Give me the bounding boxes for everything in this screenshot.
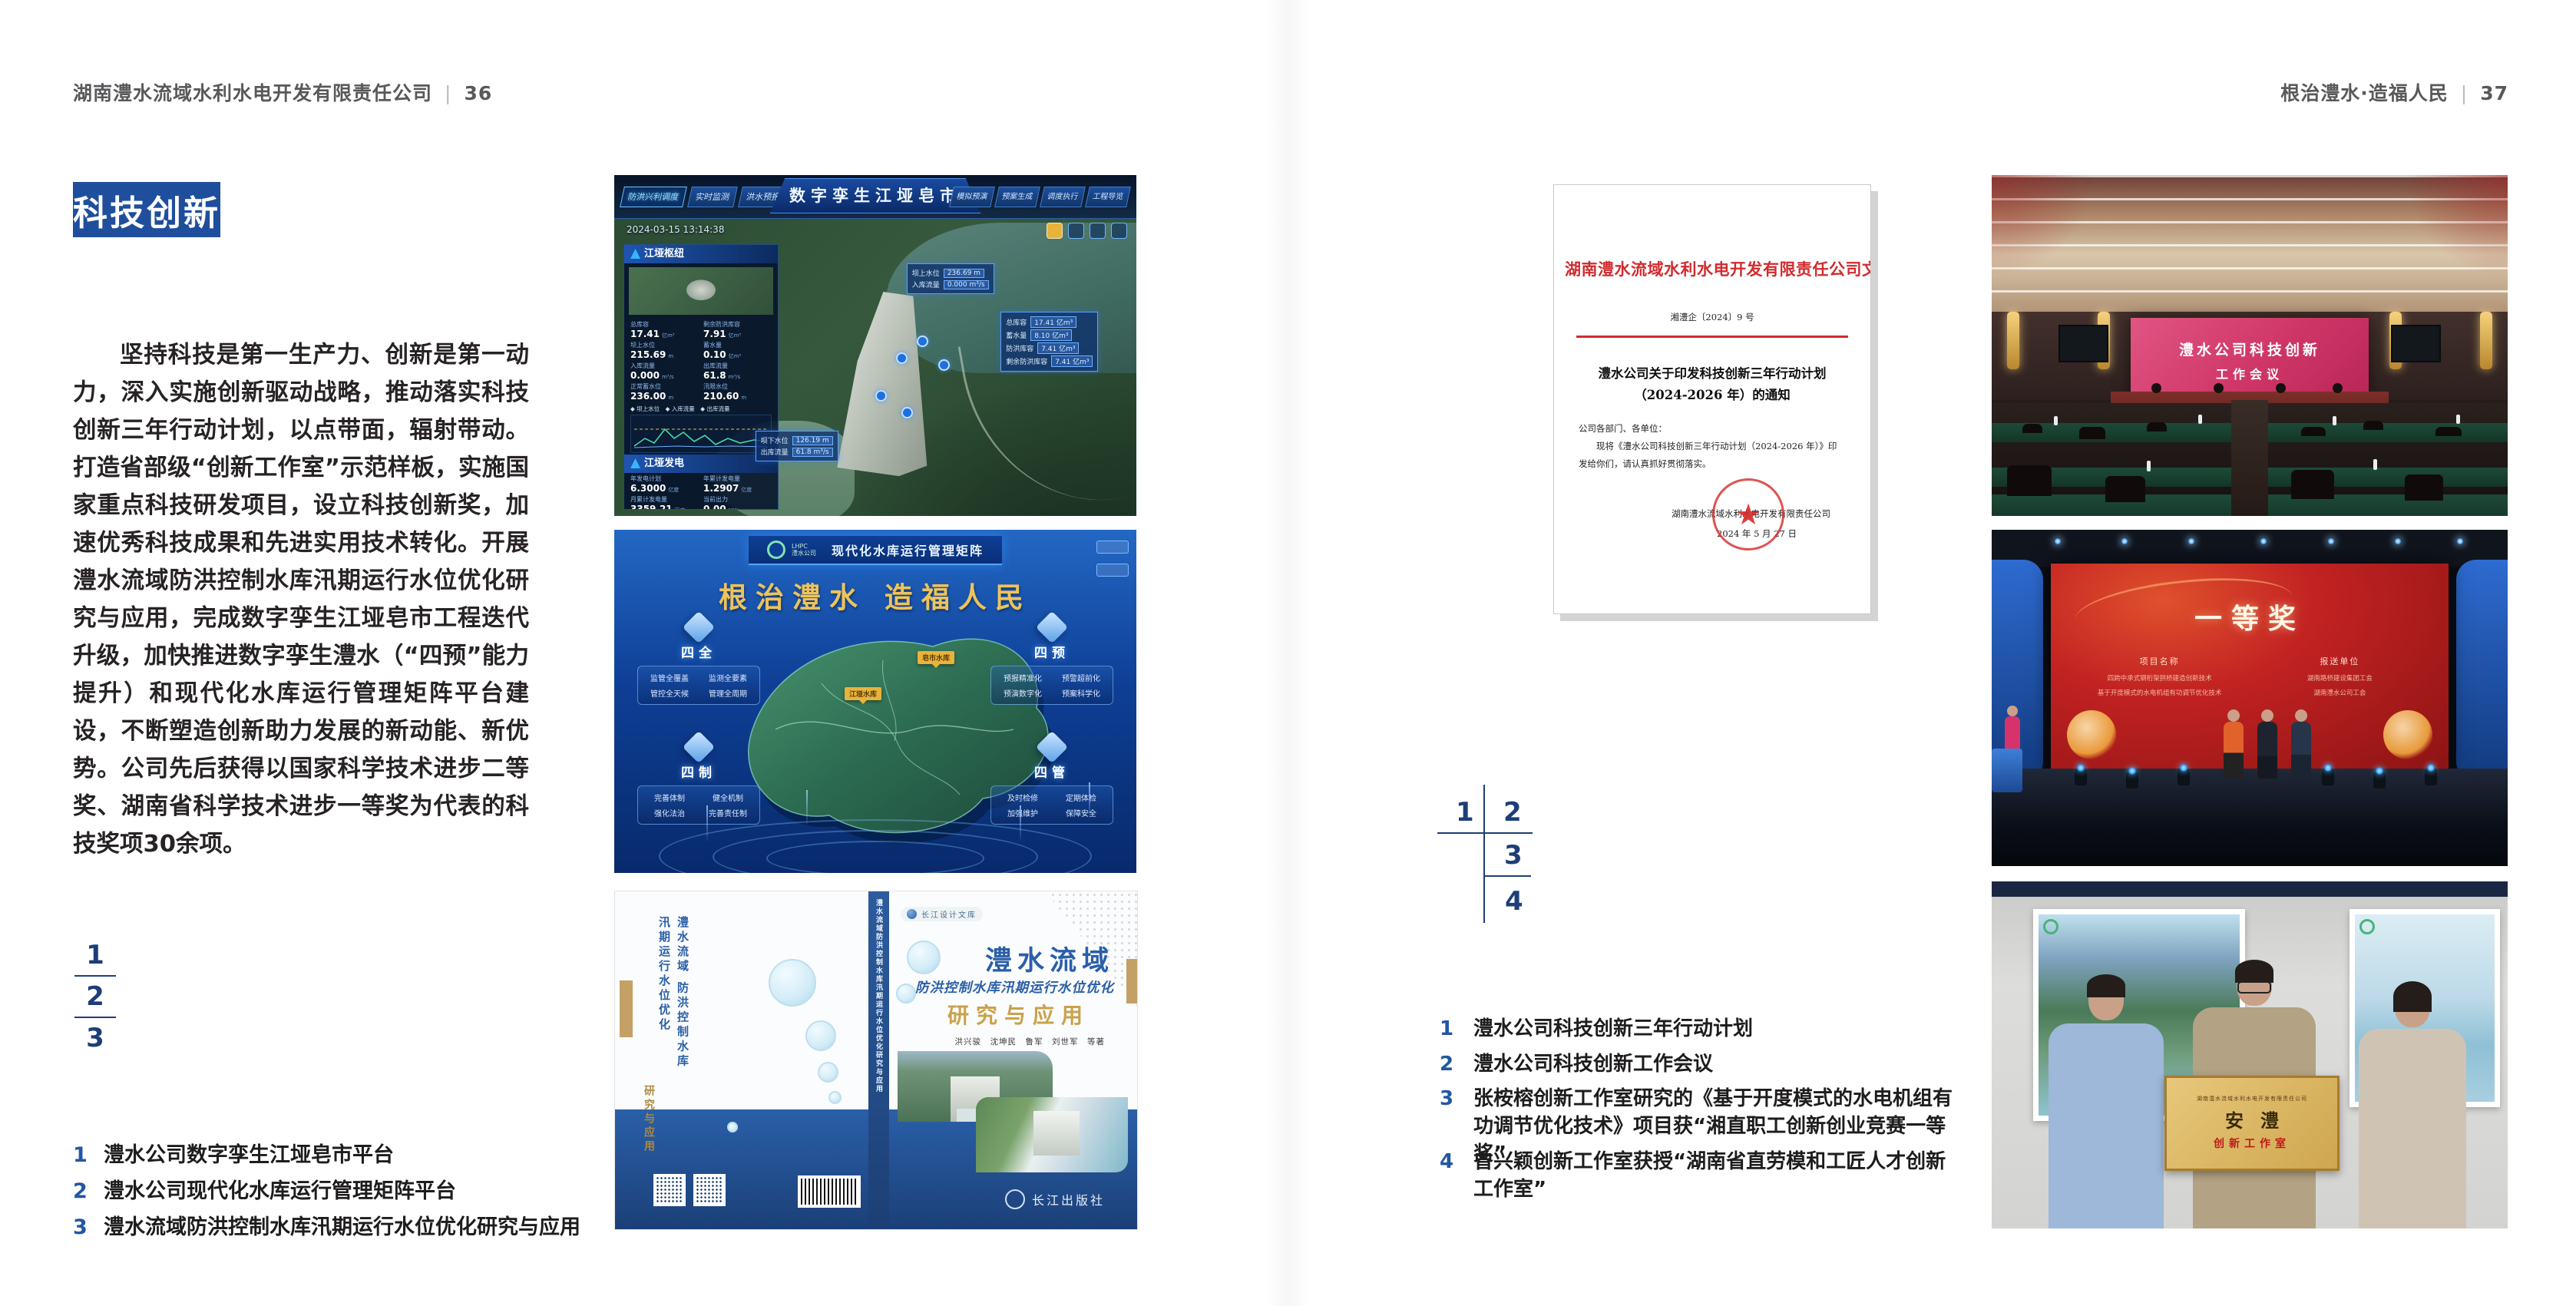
caption-row: 2 澧水公司现代化水库运行管理矩阵平台 <box>73 1179 456 1205</box>
page-number-right: 37 <box>2480 82 2508 104</box>
figure-key-number: 2 <box>74 983 116 1010</box>
poster-logo-icon <box>2359 919 2375 934</box>
alert-icon <box>1047 223 1063 239</box>
light-beam <box>1089 782 1090 819</box>
locate-icon <box>1090 223 1106 239</box>
ripple-ring <box>766 841 984 873</box>
caption-row: 1 澧水公司数字孪生江垭皂市平台 <box>73 1142 394 1169</box>
header-separator: | <box>445 82 451 104</box>
book-spine: 澧水流域防洪控制水库汛期运行水位优化研究与应用 <box>868 891 889 1229</box>
bubble-decoration <box>907 941 941 974</box>
presenter-suit <box>2257 722 2277 779</box>
stage-light-icon <box>2054 537 2062 545</box>
caption-text: 澧水公司科技创新工作会议 <box>1473 1050 1965 1078</box>
back-cover-vertical-title: 澧水流域 防洪控制水库汛期运行水位优化 <box>655 916 692 1079</box>
stat-cell: 汛限水位210.60m <box>703 382 772 402</box>
wall-lamp <box>2480 312 2492 369</box>
book-authors: 洪兴骏 沈坤民 鲁军 刘世军 等著 <box>955 1036 1106 1047</box>
stage-side-panel <box>2456 560 2508 782</box>
power-stats-grid: 年发电计划6.3000亿度 年累计发电量1.2907亿度 月累计发电量3359.… <box>624 473 778 510</box>
plaque-org-line: 湖南澧水流域水利水电开发有限责任公司 <box>2197 1095 2307 1103</box>
module-siquan: 四全 监管全覆盖监测全要素 管控全天候管理全周期 <box>637 616 760 705</box>
series-name: 长江设计文库 <box>921 908 977 920</box>
lhpc-logo-icon <box>767 541 785 559</box>
figure-meeting-photo: 澧水公司科技创新 工作会议 <box>1992 175 2508 516</box>
document-body-line: 发给你们，请认真抓好贯彻落实。 <box>1579 455 1850 473</box>
bubble-decoration <box>727 1122 738 1132</box>
spine-title: 澧水流域防洪控制水库汛期运行水位优化研究与应用 <box>874 899 884 1129</box>
sensor-marker-icon <box>896 352 908 364</box>
sensor-marker-icon <box>938 359 950 371</box>
caption-number: 4 <box>1440 1148 1473 1203</box>
light-beam <box>1020 805 1021 842</box>
module-icon <box>1036 611 1068 643</box>
page-number-left: 36 <box>464 82 492 104</box>
book-title-line1: 澧水流域 <box>985 939 1114 978</box>
document-salutation: 公司各部门、各单位： <box>1579 420 1850 438</box>
series-logo: 长江设计文库 <box>901 907 983 921</box>
host-podium <box>1992 749 2022 792</box>
person-left <box>2049 979 2164 1228</box>
map-callout-capacity: 总库容17.41 亿m³ 蓄水量8.10 亿m³ 防洪库容7.41 亿m³ 剩余… <box>1000 312 1098 372</box>
stat-cell: 坝上水位215.69m <box>630 341 699 360</box>
caption-text: 澧水公司科技创新三年行动计划 <box>1473 1015 1965 1043</box>
figure-key-rule <box>1483 785 1485 923</box>
document-red-rule <box>1576 336 1848 338</box>
figure-key-right: 1 2 3 4 <box>1434 782 1536 927</box>
moving-head-light <box>2178 769 2190 785</box>
stat-cell: 年累计发电量1.2907亿度 <box>703 474 772 494</box>
map-callout-upstream: 坝上水位236.69 m 入库流量0.000 m³/s <box>907 263 994 294</box>
stat-cell: 正常蓄水位236.00m <box>630 382 699 402</box>
moving-head-light <box>2425 769 2437 785</box>
map-callout-downstream: 坝下水位126.19 m 出库流量61.8 m³/s <box>756 431 838 461</box>
figure-matrix-platform: LHPC澧水公司 现代化水库运行管理矩阵 根治澧水 造福人民 皂市水库 江垭 <box>614 530 1136 873</box>
settings-icon <box>1111 223 1127 239</box>
stat-cell: 入库流量0.000m³/s <box>630 362 699 381</box>
person-right <box>2359 986 2466 1228</box>
caption-text: 曾兴颖创新工作室获授“湖南省直劳模和工匠人才创新工作室” <box>1473 1148 1965 1203</box>
front-cover-gold-tab <box>1126 959 1137 1003</box>
matrix-header: LHPC澧水公司 现代化水库运行管理矩阵 <box>749 536 1002 565</box>
caption-row: 1 澧水公司科技创新三年行动计划 <box>1440 1015 1965 1043</box>
figure-award-photo: 一等奖 项目名称 四跨中承式钢桁架拱桥建造创新技术 基于开度模式的水电机组有功调… <box>1992 530 2508 866</box>
tab-realtime-monitoring: 实时监测 <box>687 187 738 207</box>
dashboard-tool-icons <box>1047 223 1127 239</box>
document-number: 湘澧企〔2024〕9 号 <box>1554 311 1870 323</box>
screen-glow-orb <box>2383 710 2432 759</box>
screen-title-line2: 工作会议 <box>2216 364 2283 382</box>
module-icon <box>683 611 715 643</box>
light-beam <box>706 805 708 842</box>
bubble-decoration <box>828 1091 842 1104</box>
caption-number: 1 <box>73 1142 104 1169</box>
matrix-corner-button <box>1096 541 1129 554</box>
press-logo-icon <box>1005 1189 1025 1209</box>
press-name: 长江出版社 <box>1032 1190 1105 1208</box>
figure-key-rule <box>74 975 116 977</box>
hub-stats-grid: 总库容17.41亿m³ 剩余防洪库容7.91亿m³ 坝上水位215.69m 蓄水… <box>624 319 778 403</box>
back-cover-gold-bar <box>620 980 633 1037</box>
publisher-logo-icon <box>907 909 917 919</box>
award-title: 一等奖 <box>2051 597 2448 636</box>
document-subject: 澧水公司关于印发科技创新三年行动计划（2024-2026 年）的通知 <box>1554 363 1870 406</box>
header-separator: | <box>2461 82 2468 104</box>
awardee-orange <box>2224 722 2244 779</box>
figure-key-number: 1 <box>74 941 116 969</box>
document-body-line: 现将《澧水公司科技创新三年行动计划（2024-2026 年）》印 <box>1579 438 1850 455</box>
caption-text: 澧水公司数字孪生江垭皂市平台 <box>104 1142 394 1169</box>
moving-head-light <box>2075 769 2087 785</box>
moving-head-light <box>2126 772 2138 789</box>
right-tab-group: 模拟预演 预案生成 调度执行 工程导览 <box>951 187 1129 207</box>
figure-key-number: 1 <box>1456 797 1474 828</box>
figure-key-rule <box>1437 832 1533 834</box>
sensor-marker-icon <box>875 390 887 402</box>
hub-info-panel: 江垭枢纽 总库容17.41亿m³ 剩余防洪库容7.91亿m³ 坝上水位215.6… <box>623 244 779 510</box>
layers-icon <box>1068 223 1084 239</box>
dashboard-timestamp: 2024-03-15 13:14:38 <box>627 224 724 235</box>
figure-official-document: 湖南澧水流域水利水电开发有限责任公司文件 湘澧企〔2024〕9 号 澧水公司关于… <box>1553 184 1871 614</box>
matrix-title: 现代化水库运行管理矩阵 <box>832 541 984 559</box>
module-siyu: 四预 预报精准化预警超前化 预演数字化预案科学化 <box>990 616 1113 705</box>
book-title-line2: 防洪控制水库汛期运行水位优化 <box>915 977 1114 997</box>
barcode <box>798 1175 861 1208</box>
caption-number: 2 <box>1440 1050 1473 1078</box>
innovation-workshop-plaque: 湖南澧水流域水利水电开发有限责任公司 安澧 创新工作室 <box>2164 1076 2340 1171</box>
body-paragraph: 坚持科技是第一生产力、创新是第一动力，深入实施创新驱动战略，推动落实科技创新三年… <box>73 336 529 863</box>
caption-text: 澧水公司现代化水库运行管理矩阵平台 <box>104 1179 456 1205</box>
tab-dispatch: 调度执行 <box>1040 187 1086 207</box>
stage-light-icon <box>2327 537 2335 545</box>
tab-simulation: 模拟预演 <box>949 187 995 207</box>
stat-cell: 剩余防洪库容7.91亿m³ <box>703 320 772 339</box>
caption-row: 4 曾兴颖创新工作室获授“湖南省直劳模和工匠人才创新工作室” <box>1440 1148 1965 1203</box>
caption-text: 澧水流域防洪控制水库汛期运行水位优化研究与应用 <box>104 1215 580 1241</box>
page-gutter <box>1267 0 1310 1306</box>
award-unit-column: 报送单位 湖南路桥建设集团工会 湖南澧水公司工会 <box>2263 655 2416 703</box>
bubble-decoration <box>769 959 816 1007</box>
moving-head-light <box>2373 772 2386 789</box>
figure-key-number: 2 <box>1503 797 1522 828</box>
figure-key-number: 4 <box>1505 886 1523 917</box>
caption-row: 3 澧水流域防洪控制水库汛期运行水位优化研究与应用 <box>73 1215 580 1241</box>
screen-glow-orb <box>2067 710 2116 759</box>
spread-slogan: 根治澧水·造福人民 <box>2280 82 2449 104</box>
sensor-marker-icon <box>917 336 928 347</box>
stat-cell: 蓄水量0.10亿m³ <box>703 341 772 360</box>
official-seal-icon <box>1712 478 1784 551</box>
reservoir-marker-jiangya: 江垭水库 <box>845 687 881 700</box>
module-icon <box>1036 731 1068 763</box>
stage-light-icon <box>2121 537 2128 545</box>
panel-title: 江垭枢纽 <box>624 245 778 263</box>
module-icon <box>683 731 715 763</box>
module-siguan: 四管 及时检修定期体检 加强维护保障安全 <box>990 736 1113 825</box>
water-level-chart <box>630 415 772 453</box>
module-sizhi: 四制 完善体制健全机制 强化法治完善责任制 <box>637 736 760 825</box>
screen-title-line1: 澧水公司科技创新 <box>2179 339 2320 359</box>
dashboard-top-bar: 防洪兴利调度 实时监测 洪水预报 防汛预警 数字孪生江垭皂市 模拟预演 预案生成… <box>614 175 1136 219</box>
chart-legend: ◆ 坝上水位 ◆ 入库流量 ◆ 出库流量 <box>624 403 778 413</box>
figure-book-cover: 澧水流域 防洪控制水库汛期运行水位优化 研究与应用 澧水流域防洪控制水库汛期运行… <box>614 891 1138 1230</box>
wall-tv <box>2391 325 2440 362</box>
wall-tv <box>2058 325 2108 362</box>
magazine-spread: 湖南澧水流域水利水电开发有限责任公司|36 根治澧水·造福人民|37 科技创新 … <box>0 0 2576 1306</box>
figure-digital-twin-platform: 防洪兴利调度 实时监测 洪水预报 防汛预警 数字孪生江垭皂市 模拟预演 预案生成… <box>614 175 1136 516</box>
plaque-name: 安澧 <box>2208 1106 2296 1132</box>
sensor-marker-icon <box>901 407 913 418</box>
publisher-mark: 长江出版社 <box>1005 1189 1105 1209</box>
figure-key-left: 1 2 3 <box>74 941 116 1052</box>
caption-number: 2 <box>73 1179 104 1205</box>
tab-project-tour: 工程导览 <box>1085 187 1131 207</box>
caption-number: 3 <box>73 1215 104 1241</box>
center-aisle <box>2231 400 2267 516</box>
award-project-column: 项目名称 四跨中承式钢桁架拱桥建造创新技术 基于开度模式的水电机组有功调节优化技… <box>2083 655 2237 703</box>
tab-group-label: 防洪兴利调度 <box>620 187 687 207</box>
dashboard-title: 数字孪生江垭皂市 <box>770 178 980 213</box>
stat-cell: 总库容17.41亿m³ <box>630 320 699 339</box>
right-running-head: 根治澧水·造福人民|37 <box>2280 78 2508 106</box>
figure-key-rule <box>74 1017 116 1018</box>
stat-cell: 月累计发电量3359.21万度 <box>630 495 699 510</box>
cover-photo-dam-plant <box>976 1097 1128 1172</box>
company-name: 湖南澧水流域水利水电开发有限责任公司 <box>73 82 432 104</box>
award-led-screen: 一等奖 项目名称 四跨中承式钢桁架拱桥建造创新技术 基于开度模式的水电机组有功调… <box>2051 564 2448 772</box>
figure-key-rule <box>1483 875 1531 877</box>
tab-plan-generation: 预案生成 <box>994 187 1040 207</box>
reservoir-marker-zaoshi: 皂市水库 <box>918 651 954 664</box>
ceiling-strip <box>1992 881 2508 897</box>
plaque-subtitle: 创新工作室 <box>2214 1136 2290 1151</box>
wall-lamp <box>2007 312 2019 369</box>
document-red-title: 湖南澧水流域水利水电开发有限责任公司文件 <box>1565 257 1860 280</box>
stat-cell: 当前出力0.00MW <box>703 495 772 510</box>
stat-cell: 年发电计划6.3000亿度 <box>630 474 699 494</box>
awardee-blue <box>2291 722 2311 779</box>
bubble-decoration <box>896 984 916 1003</box>
dam-thumbnail <box>629 267 773 315</box>
moving-head-light <box>2322 769 2334 785</box>
light-beam <box>806 790 808 827</box>
section-title-badge: 科技创新 <box>73 182 220 237</box>
back-cover-vertical-subtitle: 研究与应用 <box>641 1085 656 1154</box>
figure-key-number: 3 <box>1504 840 1523 871</box>
bubble-decoration <box>805 1020 836 1051</box>
figure-key-number: 3 <box>74 1024 116 1052</box>
left-running-head: 湖南澧水流域水利水电开发有限责任公司|36 <box>73 78 492 106</box>
stage-truss <box>1992 530 2508 567</box>
lhpc-logo-text: LHPC澧水公司 <box>792 543 825 557</box>
caption-number: 1 <box>1440 1015 1473 1043</box>
caption-row: 2 澧水公司科技创新工作会议 <box>1440 1050 1965 1078</box>
stage-light-icon <box>2456 537 2464 545</box>
poster-logo-icon <box>2043 919 2058 934</box>
glasses-icon <box>2237 981 2271 994</box>
qr-code <box>693 1174 726 1206</box>
book-title-line3: 研究与应用 <box>947 999 1090 1030</box>
document-body: 公司各部门、各单位： 现将《澧水公司科技创新三年行动计划（2024-2026 年… <box>1579 420 1850 473</box>
matrix-slogan: 根治澧水 造福人民 <box>614 574 1136 616</box>
bubble-decoration <box>818 1062 838 1083</box>
stat-cell: 出库流量61.8m³/s <box>703 362 772 381</box>
qr-code <box>653 1174 686 1206</box>
figure-workshop-group-photo: 湖南澧水流域水利水电开发有限责任公司 安澧 创新工作室 <box>1992 881 2508 1228</box>
